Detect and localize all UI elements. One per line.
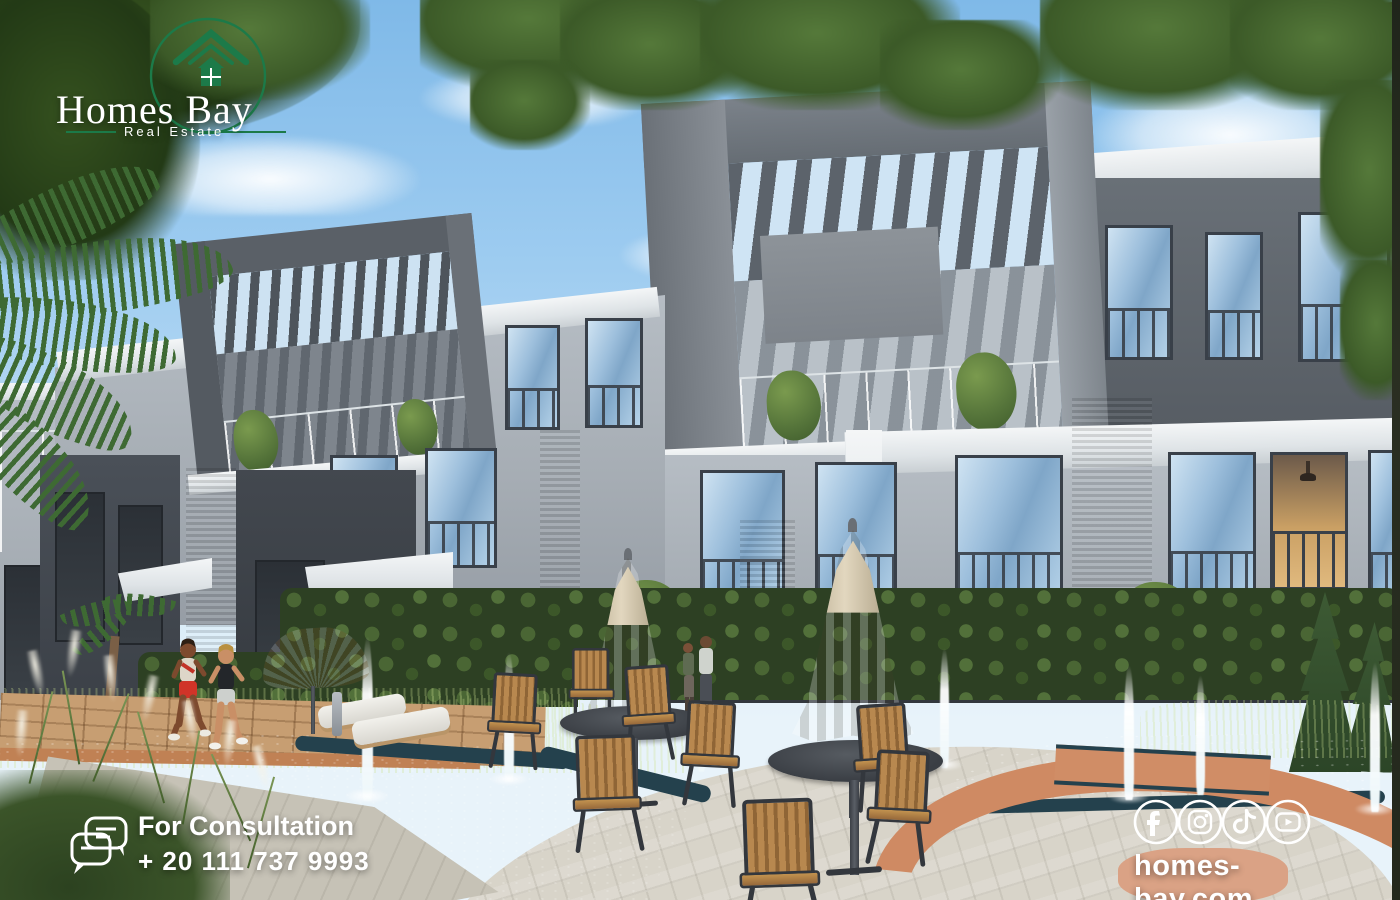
leaf-cluster	[1320, 80, 1400, 280]
chair-back	[575, 734, 637, 803]
chair-back	[874, 749, 930, 814]
brand-logo: Homes Bay Real Estate	[48, 6, 348, 161]
brand-tagline: Real Estate	[124, 124, 224, 139]
fountain-jet	[940, 648, 949, 768]
tiktok-icon[interactable]	[1220, 798, 1268, 846]
pendant-lamp	[1300, 473, 1316, 481]
accent-panel	[1072, 398, 1152, 613]
instagram-icon[interactable]	[1176, 798, 1224, 846]
balcony-railing	[587, 385, 641, 425]
social-icons-row	[1132, 798, 1312, 846]
chair-back	[624, 664, 672, 719]
youtube-icon[interactable]	[1264, 798, 1312, 846]
umbrella-pole	[311, 686, 315, 734]
chair-back	[491, 672, 538, 726]
fountain-jet	[1124, 665, 1134, 800]
leaf-cluster	[880, 20, 1060, 130]
consultation-label: For Consultation	[138, 812, 354, 842]
window	[585, 318, 643, 428]
pergola-large	[641, 80, 1109, 463]
house-roof-icon	[176, 33, 246, 86]
consultation-phone: + 20 111 737 9993	[138, 846, 370, 877]
window	[1205, 232, 1263, 360]
chair-back	[572, 648, 609, 692]
fountain-jet	[1370, 662, 1380, 812]
umbrella-tier	[812, 541, 895, 613]
frame-edge	[1392, 0, 1400, 900]
chat-bubbles-icon	[64, 810, 134, 880]
consultation-block: For Consultation + 20 111 737 9993	[58, 798, 398, 894]
fountain-splash	[1354, 802, 1396, 816]
facebook-icon[interactable]	[1132, 798, 1180, 846]
umbrella-finial	[848, 518, 857, 532]
window	[505, 325, 560, 430]
fountain-jet	[1196, 675, 1205, 795]
joggers	[166, 638, 256, 762]
website-link[interactable]: homes-bay.com	[1134, 850, 1342, 900]
window	[1105, 225, 1173, 360]
leaf-cluster	[470, 60, 590, 150]
bollard-light	[332, 692, 342, 736]
balcony-railing	[1207, 310, 1261, 357]
leaf-cluster	[1340, 260, 1400, 400]
balcony-railing	[507, 388, 558, 427]
balcony-railing	[1107, 308, 1171, 357]
window	[425, 448, 497, 568]
poster: Homes Bay Real Estate For Consultation +…	[0, 0, 1400, 900]
window-lit	[1270, 452, 1348, 590]
table-pedestal	[850, 780, 859, 875]
roof-volume	[760, 227, 943, 344]
footer-links: homes-bay.com	[1132, 798, 1342, 893]
chair-back	[742, 798, 815, 878]
umbrella-tier	[595, 567, 660, 625]
chair-back	[685, 700, 736, 760]
balcony-railing	[1272, 531, 1346, 587]
fountain-splash	[488, 772, 530, 786]
